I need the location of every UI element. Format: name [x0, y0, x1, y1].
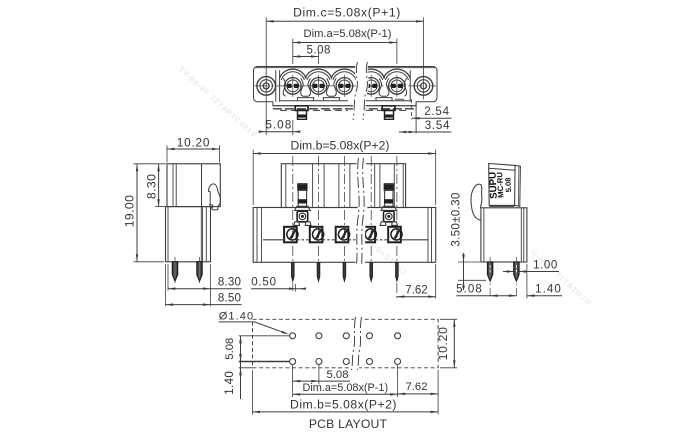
- svg-text:0.50: 0.50: [251, 277, 277, 289]
- svg-text:Dim.b=5.08x(P+2): Dim.b=5.08x(P+2): [291, 138, 390, 152]
- svg-text:Ø1.40: Ø1.40: [219, 311, 254, 323]
- svg-text:8.30: 8.30: [218, 276, 241, 289]
- svg-text:Dim.a=5.08x(P-1): Dim.a=5.08x(P-1): [304, 28, 392, 40]
- svg-text:5.08: 5.08: [224, 338, 236, 360]
- svg-text:7.62: 7.62: [405, 285, 427, 297]
- svg-text:Dim.c=5.08x(P+1): Dim.c=5.08x(P+1): [293, 6, 401, 20]
- svg-text:7.62: 7.62: [406, 381, 428, 393]
- svg-text:3.50±0.30: 3.50±0.30: [450, 192, 463, 246]
- svg-text:10.20: 10.20: [436, 326, 450, 360]
- svg-text:2.54: 2.54: [424, 106, 450, 118]
- svg-text:5.08: 5.08: [265, 118, 292, 132]
- svg-text:PCB LAYOUT: PCB LAYOUT: [309, 417, 388, 431]
- svg-text:Dim.b=5.08x(P+2): Dim.b=5.08x(P+2): [290, 397, 397, 411]
- svg-text:3.54: 3.54: [425, 120, 451, 132]
- svg-text:8.50: 8.50: [218, 292, 241, 305]
- svg-text:5.08: 5.08: [456, 284, 483, 296]
- svg-text:5.08: 5.08: [503, 177, 513, 192]
- svg-text:1.40: 1.40: [535, 284, 562, 296]
- svg-text:1.40: 1.40: [224, 371, 236, 395]
- svg-text:8.30: 8.30: [144, 174, 158, 199]
- svg-text:Dim.a=5.08x(P-1): Dim.a=5.08x(P-1): [302, 382, 388, 394]
- svg-text:5.08: 5.08: [327, 369, 349, 381]
- svg-text:19.00: 19.00: [122, 195, 136, 228]
- svg-text:1.00: 1.00: [533, 259, 558, 271]
- svg-text:10.20: 10.20: [177, 135, 211, 149]
